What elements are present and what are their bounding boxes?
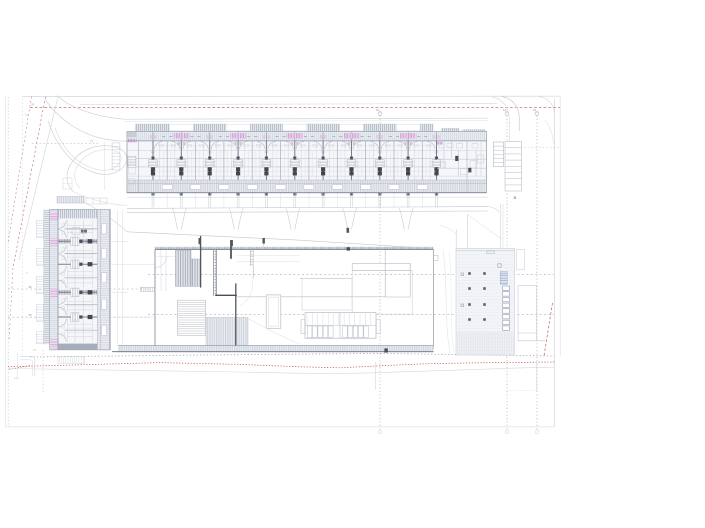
svg-text:77: 77 [90,140,94,144]
svg-text:&: & [514,195,517,200]
svg-text:46: 46 [29,285,33,289]
svg-text:11: 11 [503,108,506,112]
svg-text:12: 12 [533,108,537,112]
svg-text:45: 45 [29,313,33,317]
svg-text:10: 10 [376,108,380,112]
svg-text:76: 76 [31,103,35,107]
svg-text:a 1L: a 1L [14,376,20,380]
